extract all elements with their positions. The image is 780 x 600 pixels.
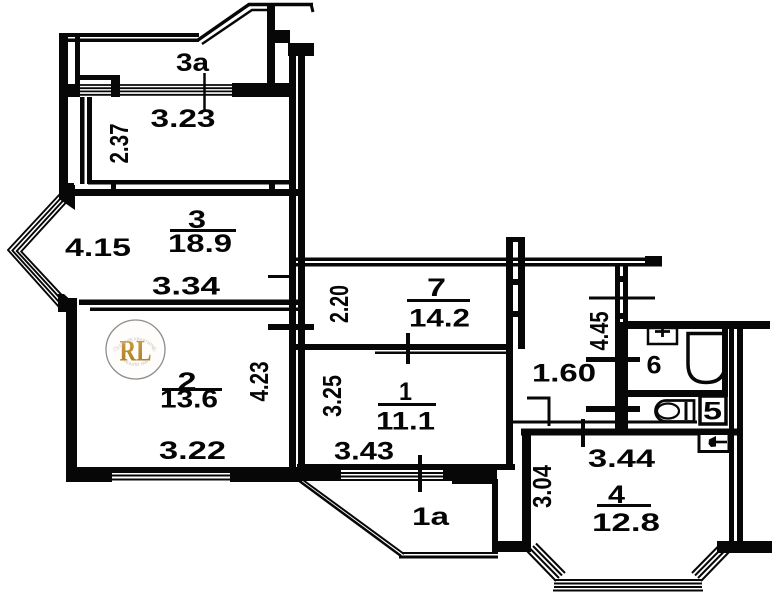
- svg-text:6: 6: [647, 352, 662, 380]
- svg-text:3.25: 3.25: [317, 375, 347, 417]
- svg-text:4.15: 4.15: [65, 234, 131, 262]
- svg-text:3a: 3a: [176, 49, 210, 77]
- svg-text:3.04: 3.04: [527, 465, 557, 508]
- svg-text:7: 7: [427, 274, 446, 302]
- svg-text:3.44: 3.44: [588, 445, 655, 473]
- svg-text:©: ©: [113, 347, 118, 354]
- svg-text:13.6: 13.6: [160, 386, 218, 414]
- svg-text:3.43: 3.43: [334, 438, 394, 466]
- svg-text:1a: 1a: [412, 503, 450, 531]
- svg-text:©: ©: [152, 347, 157, 354]
- svg-text:1: 1: [399, 378, 412, 406]
- svg-text:14.2: 14.2: [409, 305, 470, 333]
- svg-text:2.37: 2.37: [104, 124, 134, 164]
- svg-text:11.1: 11.1: [376, 408, 435, 436]
- svg-text:5: 5: [703, 398, 722, 426]
- svg-text:2.20: 2.20: [324, 285, 354, 323]
- svg-text:3.22: 3.22: [159, 437, 226, 465]
- svg-text:4.23: 4.23: [244, 362, 274, 402]
- svg-text:18.9: 18.9: [168, 230, 232, 258]
- svg-text:12.8: 12.8: [592, 509, 660, 537]
- svg-text:1.60: 1.60: [532, 360, 596, 388]
- svg-text:4.45: 4.45: [584, 312, 614, 351]
- svg-text:3.23: 3.23: [151, 105, 216, 133]
- svg-text:3.34: 3.34: [152, 273, 220, 301]
